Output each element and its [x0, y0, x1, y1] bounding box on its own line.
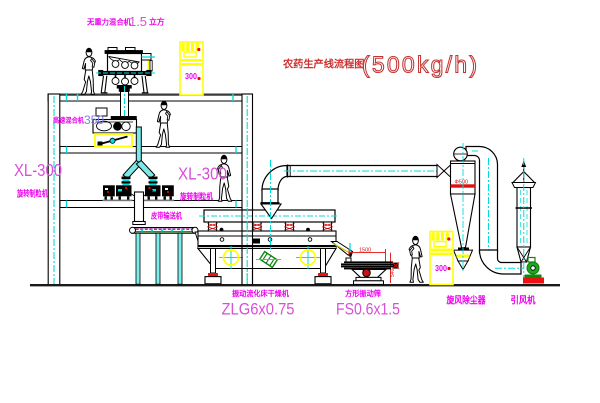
svg-text:Φ500: Φ500: [455, 180, 469, 186]
svg-text:立方: 立方: [149, 17, 165, 27]
svg-text:FS0.6x1.5: FS0.6x1.5: [336, 301, 400, 319]
svg-text:XL-300: XL-300: [178, 164, 227, 184]
svg-text:旋转制粒机: 旋转制粒机: [179, 192, 213, 202]
svg-text:ZLG6x0.75: ZLG6x0.75: [222, 301, 295, 319]
svg-text:300: 300: [185, 71, 197, 81]
svg-text:引风机: 引风机: [511, 295, 536, 307]
svg-text:XL-300: XL-300: [14, 160, 62, 180]
svg-text:300: 300: [435, 263, 447, 273]
svg-text:旋转制粒机: 旋转制粒机: [16, 189, 48, 199]
svg-text:振动流化床干燥机: 振动流化床干燥机: [232, 289, 290, 298]
svg-text:高速混合机: 高速混合机: [53, 116, 84, 125]
svg-text:皮带输送机: 皮带输送机: [150, 211, 182, 221]
svg-text:农药生产线流程图: 农药生产线流程图: [282, 58, 365, 71]
svg-text:350: 350: [84, 113, 104, 127]
svg-text:1.5: 1.5: [129, 14, 147, 29]
svg-text:无重力混合机: 无重力混合机: [86, 18, 132, 27]
svg-text:1500: 1500: [359, 248, 371, 254]
svg-text:540: 540: [390, 268, 396, 277]
svg-text:(500kg/h): (500kg/h): [362, 52, 477, 78]
svg-text:方形振动筛: 方形振动筛: [345, 289, 382, 298]
svg-text:旋风除尘器: 旋风除尘器: [446, 295, 486, 307]
